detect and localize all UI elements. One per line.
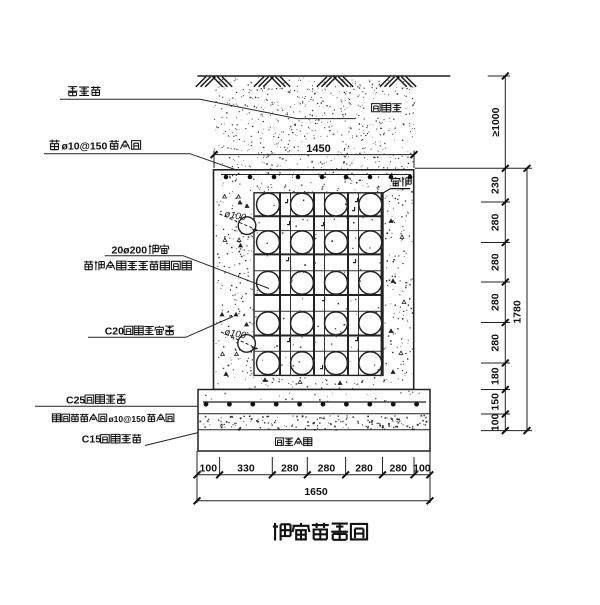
svg-text:280: 280 xyxy=(490,213,502,231)
svg-text:280: 280 xyxy=(490,334,502,352)
svg-text:150: 150 xyxy=(490,393,502,411)
svg-text:100: 100 xyxy=(200,462,218,474)
svg-text:C25: C25 xyxy=(66,394,85,406)
svg-text:280: 280 xyxy=(355,462,373,474)
svg-text:1650: 1650 xyxy=(304,486,328,498)
svg-text:ø10@150: ø10@150 xyxy=(108,414,145,424)
svg-text:100: 100 xyxy=(490,413,502,431)
svg-text:C20: C20 xyxy=(105,326,124,338)
svg-text:ø10@150: ø10@150 xyxy=(62,140,108,152)
svg-text:C15: C15 xyxy=(82,434,101,446)
svg-text:1450: 1450 xyxy=(306,143,330,155)
svg-text:20ø200: 20ø200 xyxy=(112,245,148,257)
svg-text:280: 280 xyxy=(318,462,336,474)
svg-text:330: 330 xyxy=(237,462,255,474)
svg-text:≥1000: ≥1000 xyxy=(490,107,502,136)
svg-text:1780: 1780 xyxy=(512,300,524,324)
svg-text:100: 100 xyxy=(413,462,431,474)
svg-text:180: 180 xyxy=(490,367,502,385)
svg-text:230: 230 xyxy=(490,176,502,194)
svg-text:280: 280 xyxy=(490,293,502,311)
svg-text:280: 280 xyxy=(389,462,407,474)
svg-text:280: 280 xyxy=(490,253,502,271)
svg-text:280: 280 xyxy=(281,462,299,474)
